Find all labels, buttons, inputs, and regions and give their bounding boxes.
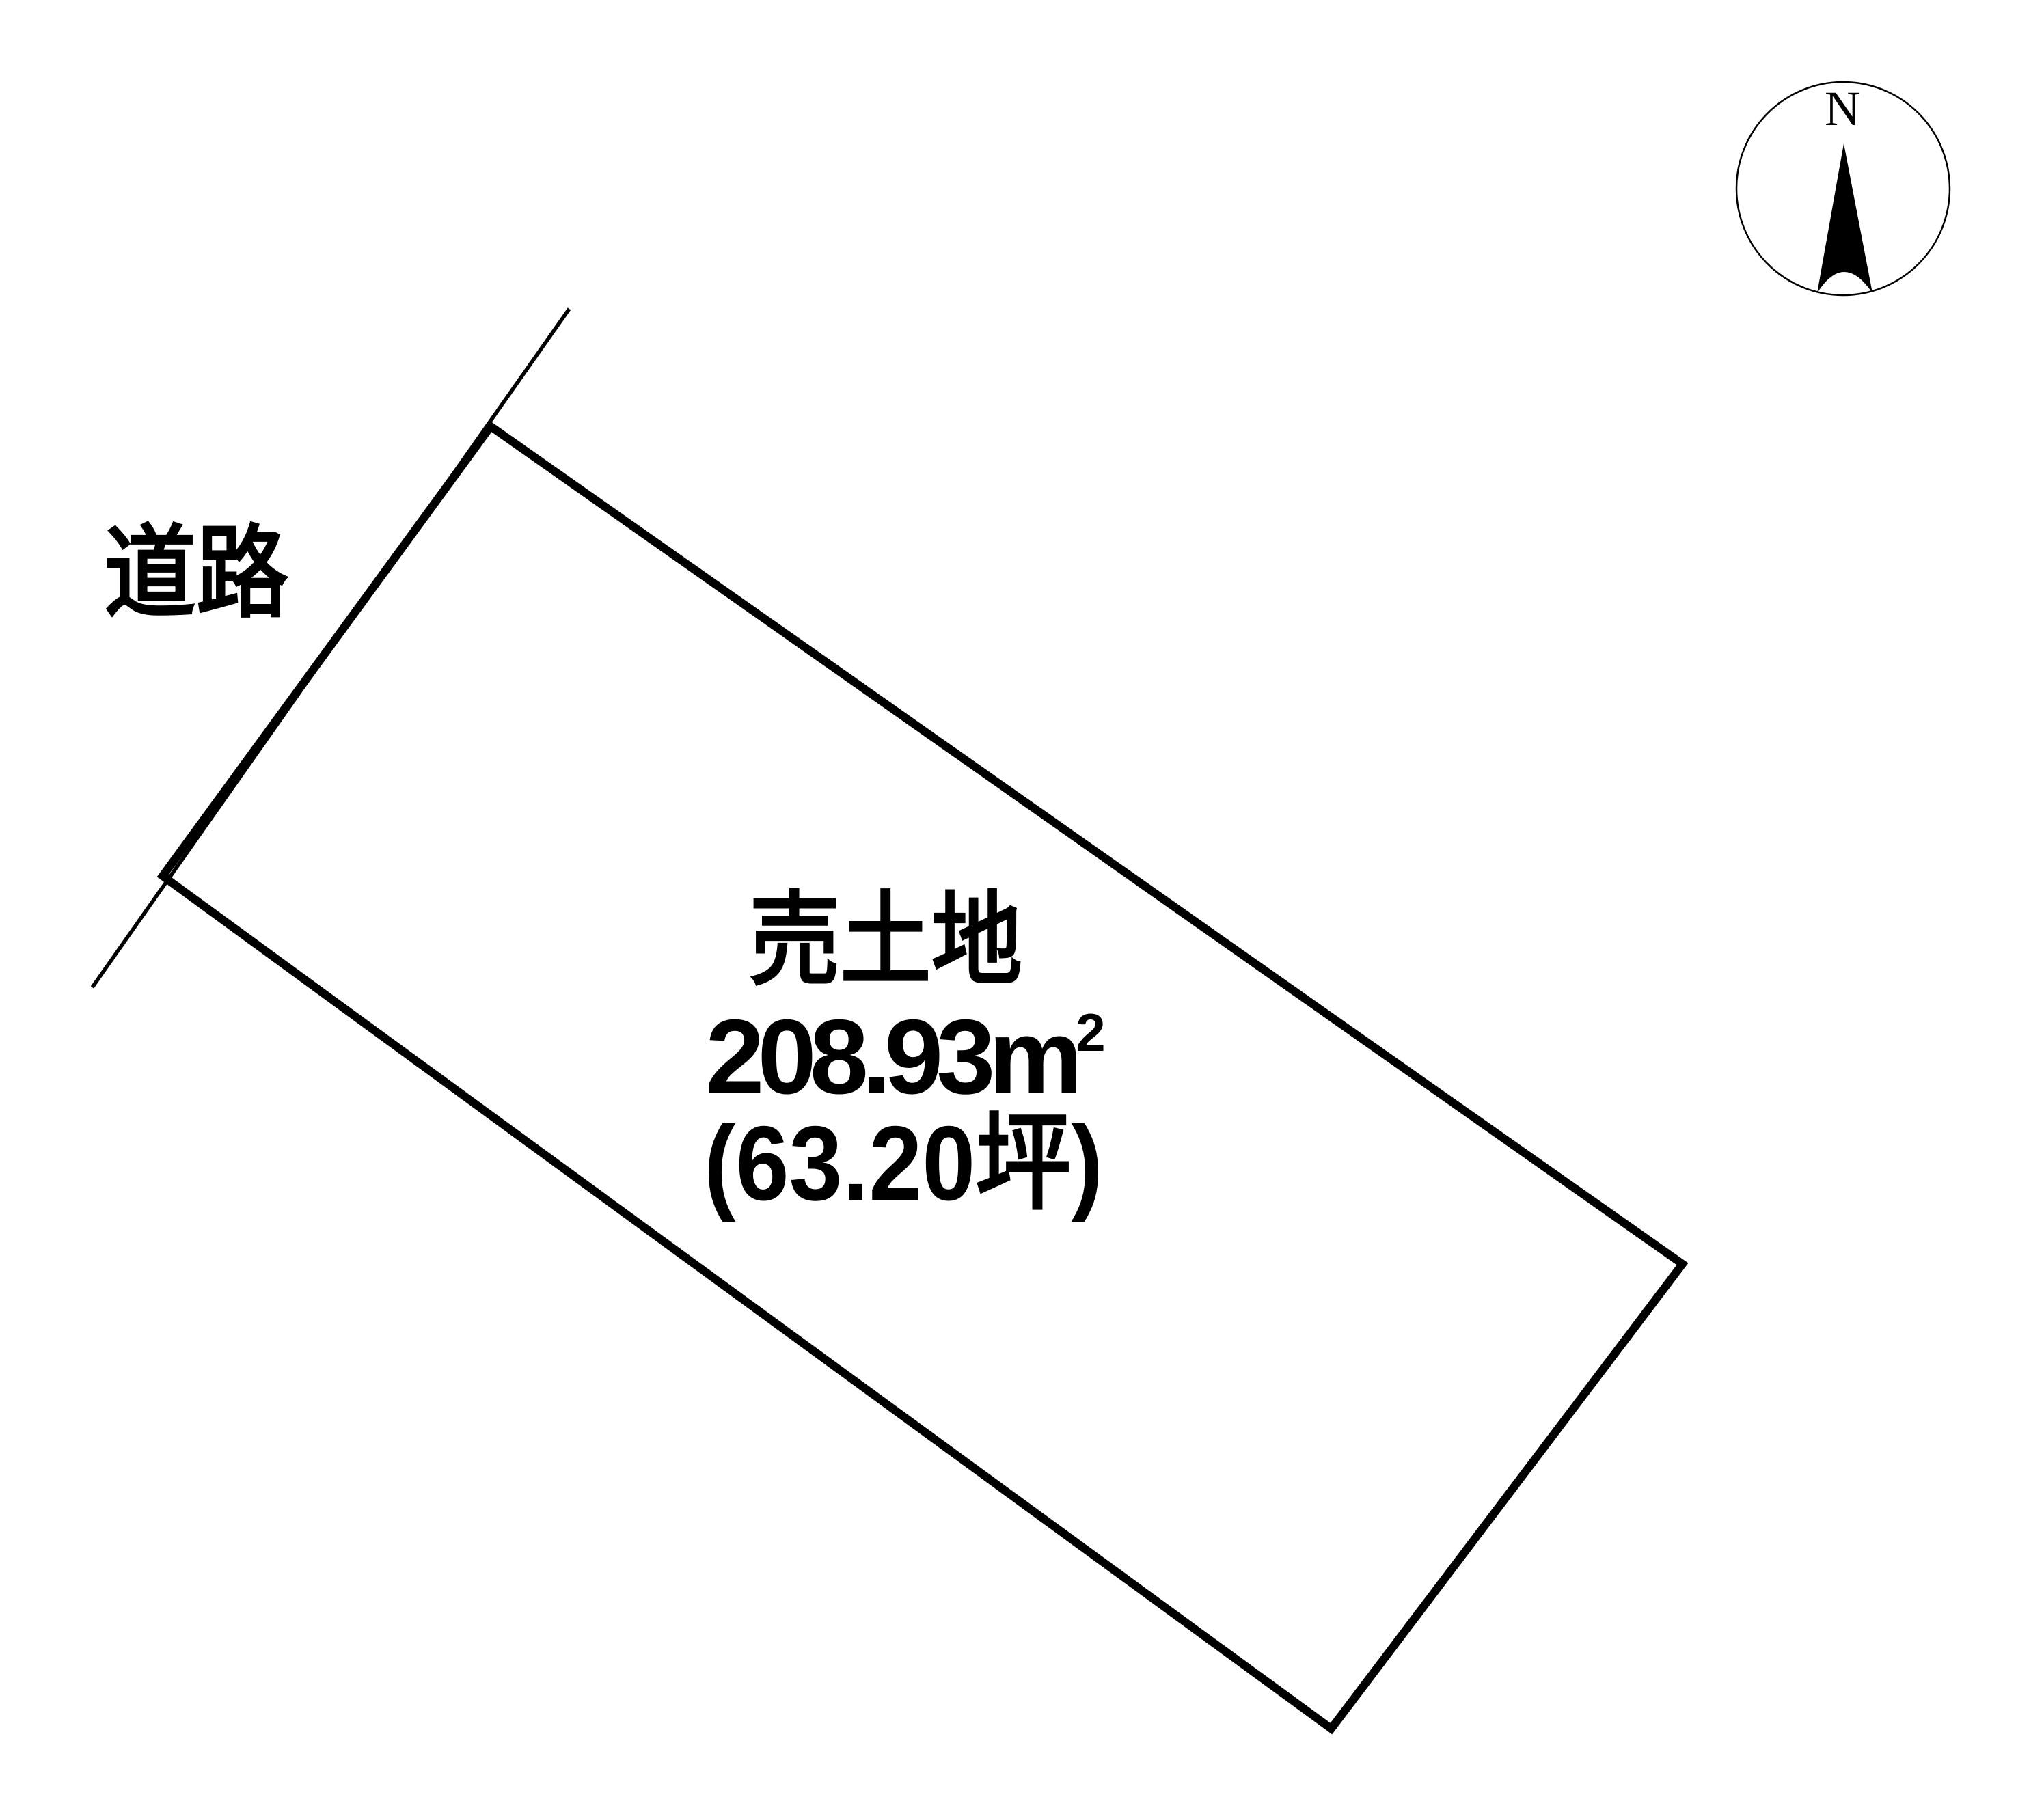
parcel-area-tsubo: (63.20坪) [704, 1104, 1103, 1222]
parcel-area-sqm-exponent: 2 [1076, 1002, 1105, 1062]
north-arrow-icon [1817, 143, 1872, 293]
site-plan-drawing: 道路 売土地 208.93m2 (63.20坪) N [0, 0, 2044, 1812]
site-plan: 道路 売土地 208.93m2 (63.20坪) N [0, 0, 2044, 1812]
road-label: 道路 [104, 517, 289, 630]
parcel-title: 売土地 [749, 883, 1022, 998]
parcel-area-sqm: 208.93m2 [705, 998, 1105, 1116]
parcel-area-sqm-unit: m [988, 998, 1076, 1116]
compass-north-label: N [1825, 81, 1860, 136]
parcel-area-sqm-value: 208.93 [705, 998, 992, 1116]
north-compass: N [1736, 81, 1950, 295]
